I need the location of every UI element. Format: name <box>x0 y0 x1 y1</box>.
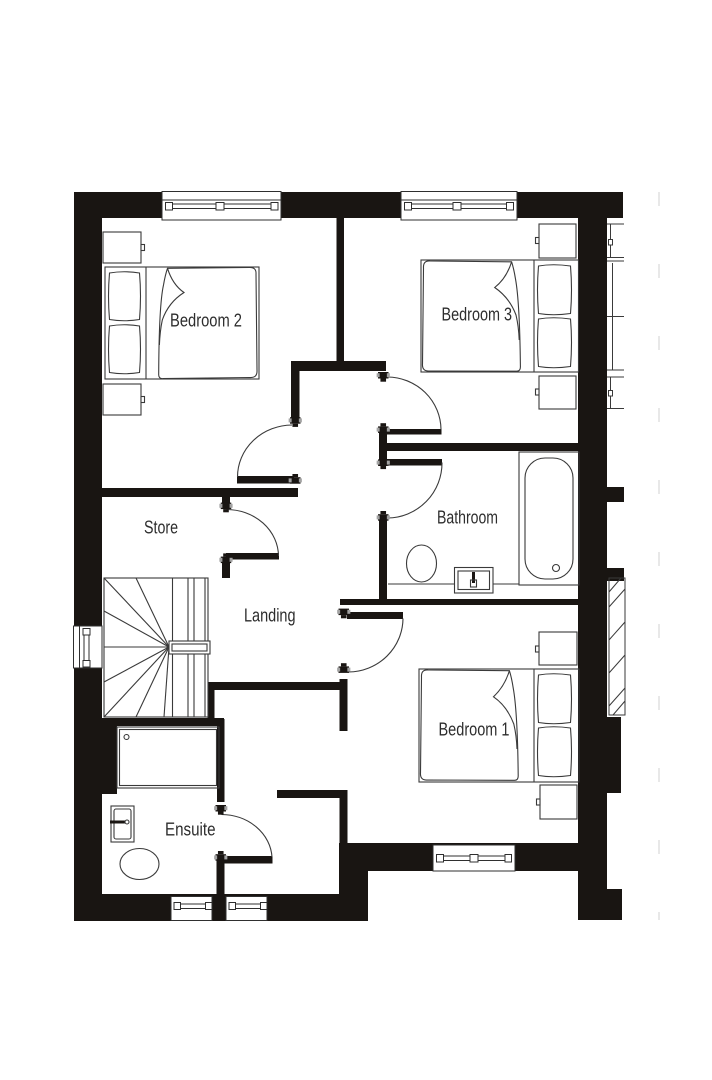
svg-text:Bedroom 3: Bedroom 3 <box>442 304 513 325</box>
svg-text:Ensuite: Ensuite <box>165 819 216 840</box>
svg-text:Bathroom: Bathroom <box>437 507 498 528</box>
svg-text:Landing: Landing <box>244 605 296 626</box>
svg-text:Bedroom 1: Bedroom 1 <box>439 719 510 740</box>
svg-text:Bedroom 2: Bedroom 2 <box>170 310 242 331</box>
svg-text:Store: Store <box>144 517 178 538</box>
